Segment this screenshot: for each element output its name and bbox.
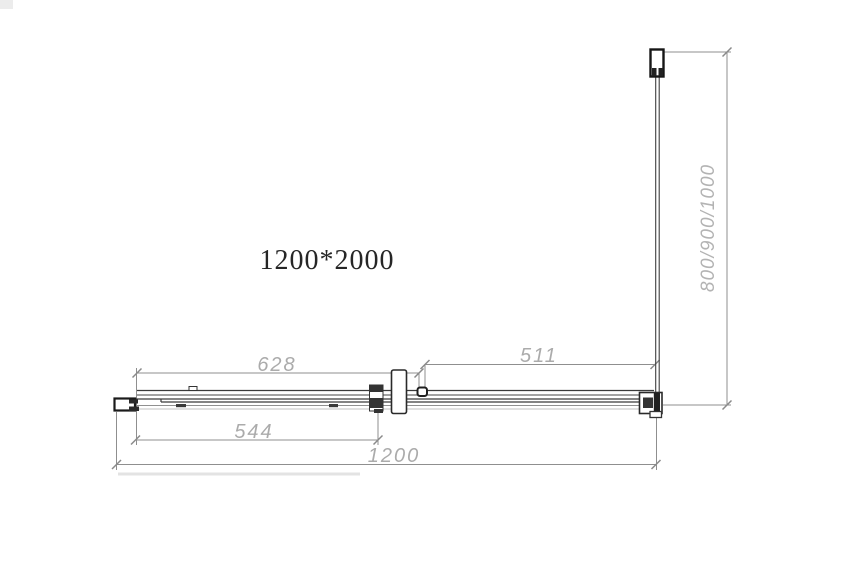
corner-smudge-artifact [0,0,13,9]
dimension-label-511: 511 [520,345,558,367]
door-handle-knob [418,388,428,397]
rail-stopper-top [189,387,197,391]
top-wall-profile [651,50,664,77]
technical-drawing-page: 1200*2000 628 511 544 1200 800/900/1000 [0,0,866,567]
faint-shadow-line [118,473,360,476]
drawing-title: 1200*2000 [260,245,395,276]
corner-bracket [640,393,663,418]
dimension-label-544: 544 [234,421,273,443]
shower-enclosure-plan-drawing: 1200*2000 628 511 544 1200 800/900/1000 [0,0,866,567]
roller-housing [392,370,407,414]
side-glass-panel [656,76,660,394]
dimension-label-628: 628 [257,354,296,376]
dimension-label-side-depth: 800/900/1000 [698,164,719,292]
rail-clip-left [176,404,186,407]
front-rail-lines [120,391,654,410]
rail-clip-middle [329,404,338,407]
dimension-label-1200: 1200 [368,445,421,467]
roller-carrier [370,385,384,413]
left-wall-profile [115,399,140,412]
